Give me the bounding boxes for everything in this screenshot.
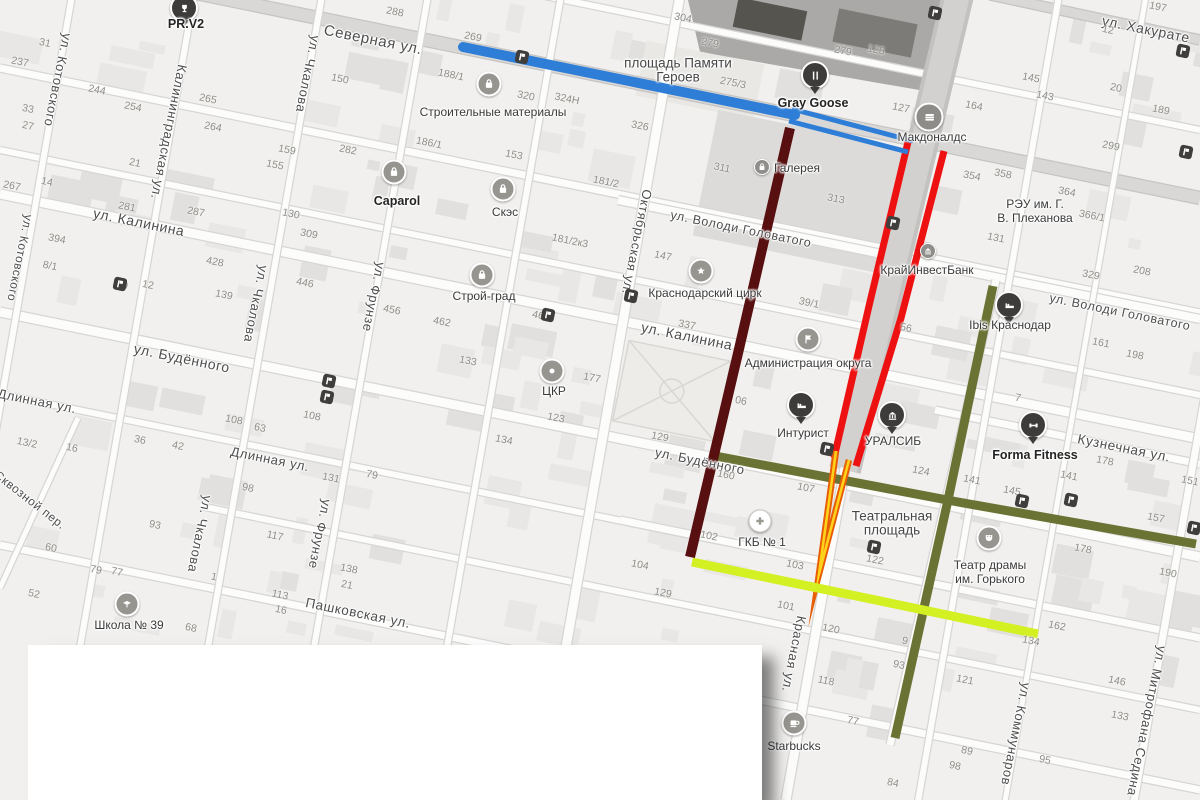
road-closure-map-screenshot: Северная ул.ул. Хакуратеул. Калининаул. … <box>0 0 1200 800</box>
legend-panel: - 9 мая 2019 г. - движение перекрыто с 0… <box>28 645 762 800</box>
